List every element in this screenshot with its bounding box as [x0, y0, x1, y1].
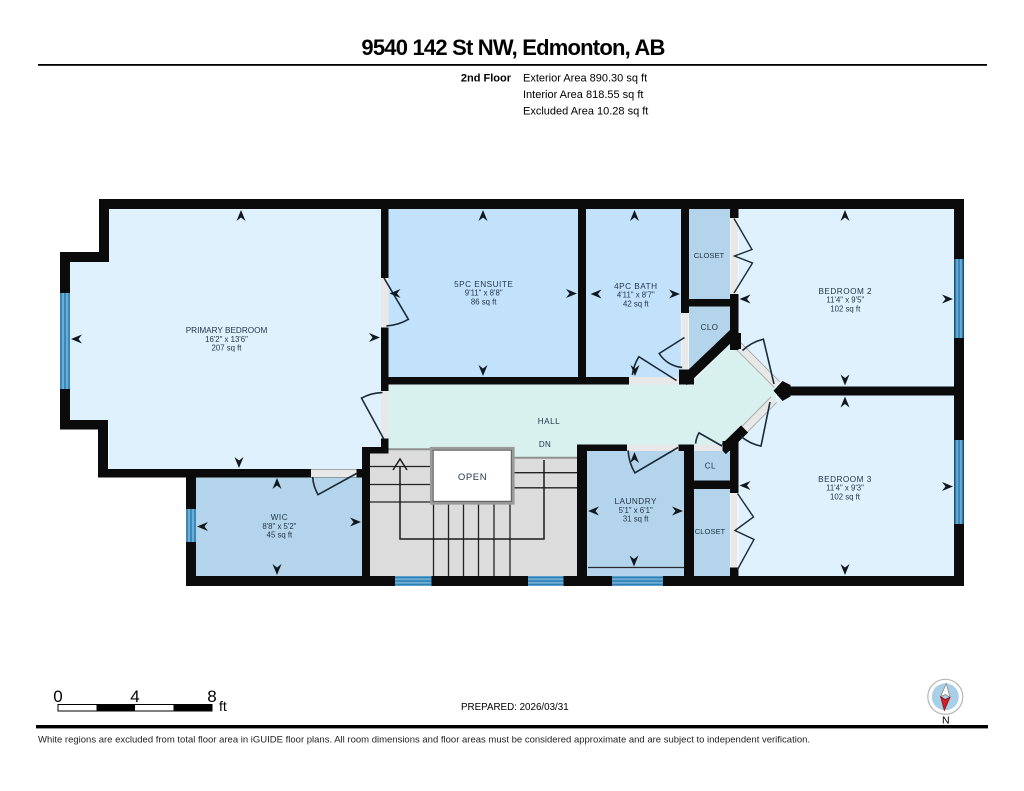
svg-text:2nd Floor: 2nd Floor: [461, 73, 512, 85]
svg-text:11'4" x 9'3": 11'4" x 9'3": [826, 484, 864, 493]
svg-text:4: 4: [130, 687, 139, 706]
svg-text:9'11" x 8'8": 9'11" x 8'8": [465, 289, 503, 298]
svg-text:8: 8: [207, 687, 216, 706]
svg-text:PREPARED: 2026/03/31: PREPARED: 2026/03/31: [461, 702, 569, 713]
svg-text:White regions are excluded fro: White regions are excluded from total fl…: [38, 735, 810, 746]
svg-text:31 sq ft: 31 sq ft: [623, 515, 649, 524]
svg-text:CLOSET: CLOSET: [695, 527, 726, 536]
svg-text:CL: CL: [705, 462, 716, 471]
svg-text:5'1" x 6'1": 5'1" x 6'1": [619, 506, 653, 515]
svg-text:Exterior Area 890.30 sq ft: Exterior Area 890.30 sq ft: [523, 73, 647, 85]
svg-text:PRIMARY BEDROOM: PRIMARY BEDROOM: [186, 326, 268, 335]
svg-text:0: 0: [53, 687, 62, 706]
svg-text:DN: DN: [539, 440, 551, 449]
svg-text:11'4" x 9'5": 11'4" x 9'5": [826, 296, 864, 305]
svg-text:42 sq ft: 42 sq ft: [623, 299, 649, 308]
svg-text:N: N: [942, 715, 950, 727]
svg-text:Excluded Area 10.28 sq ft: Excluded Area 10.28 sq ft: [523, 105, 648, 117]
svg-text:102 sq ft: 102 sq ft: [830, 492, 861, 501]
svg-text:45 sq ft: 45 sq ft: [267, 531, 293, 540]
svg-text:ft: ft: [219, 698, 227, 714]
svg-text:Interior Area 818.55 sq ft: Interior Area 818.55 sq ft: [523, 89, 643, 101]
svg-text:HALL: HALL: [538, 417, 560, 426]
svg-text:CLO: CLO: [701, 323, 719, 332]
svg-text:4'11" x 8'7": 4'11" x 8'7": [617, 291, 655, 300]
svg-text:LAUNDRY: LAUNDRY: [614, 497, 657, 506]
svg-text:CLOSET: CLOSET: [694, 251, 725, 260]
svg-text:8'8" x 5'2": 8'8" x 5'2": [262, 522, 296, 531]
svg-text:OPEN: OPEN: [458, 472, 487, 483]
svg-text:86 sq ft: 86 sq ft: [471, 297, 497, 306]
svg-text:WIC: WIC: [271, 513, 288, 522]
svg-text:9540 142 St NW, Edmonton, AB: 9540 142 St NW, Edmonton, AB: [361, 35, 664, 60]
svg-text:207 sq ft: 207 sq ft: [212, 343, 243, 352]
svg-text:102 sq ft: 102 sq ft: [830, 304, 861, 313]
